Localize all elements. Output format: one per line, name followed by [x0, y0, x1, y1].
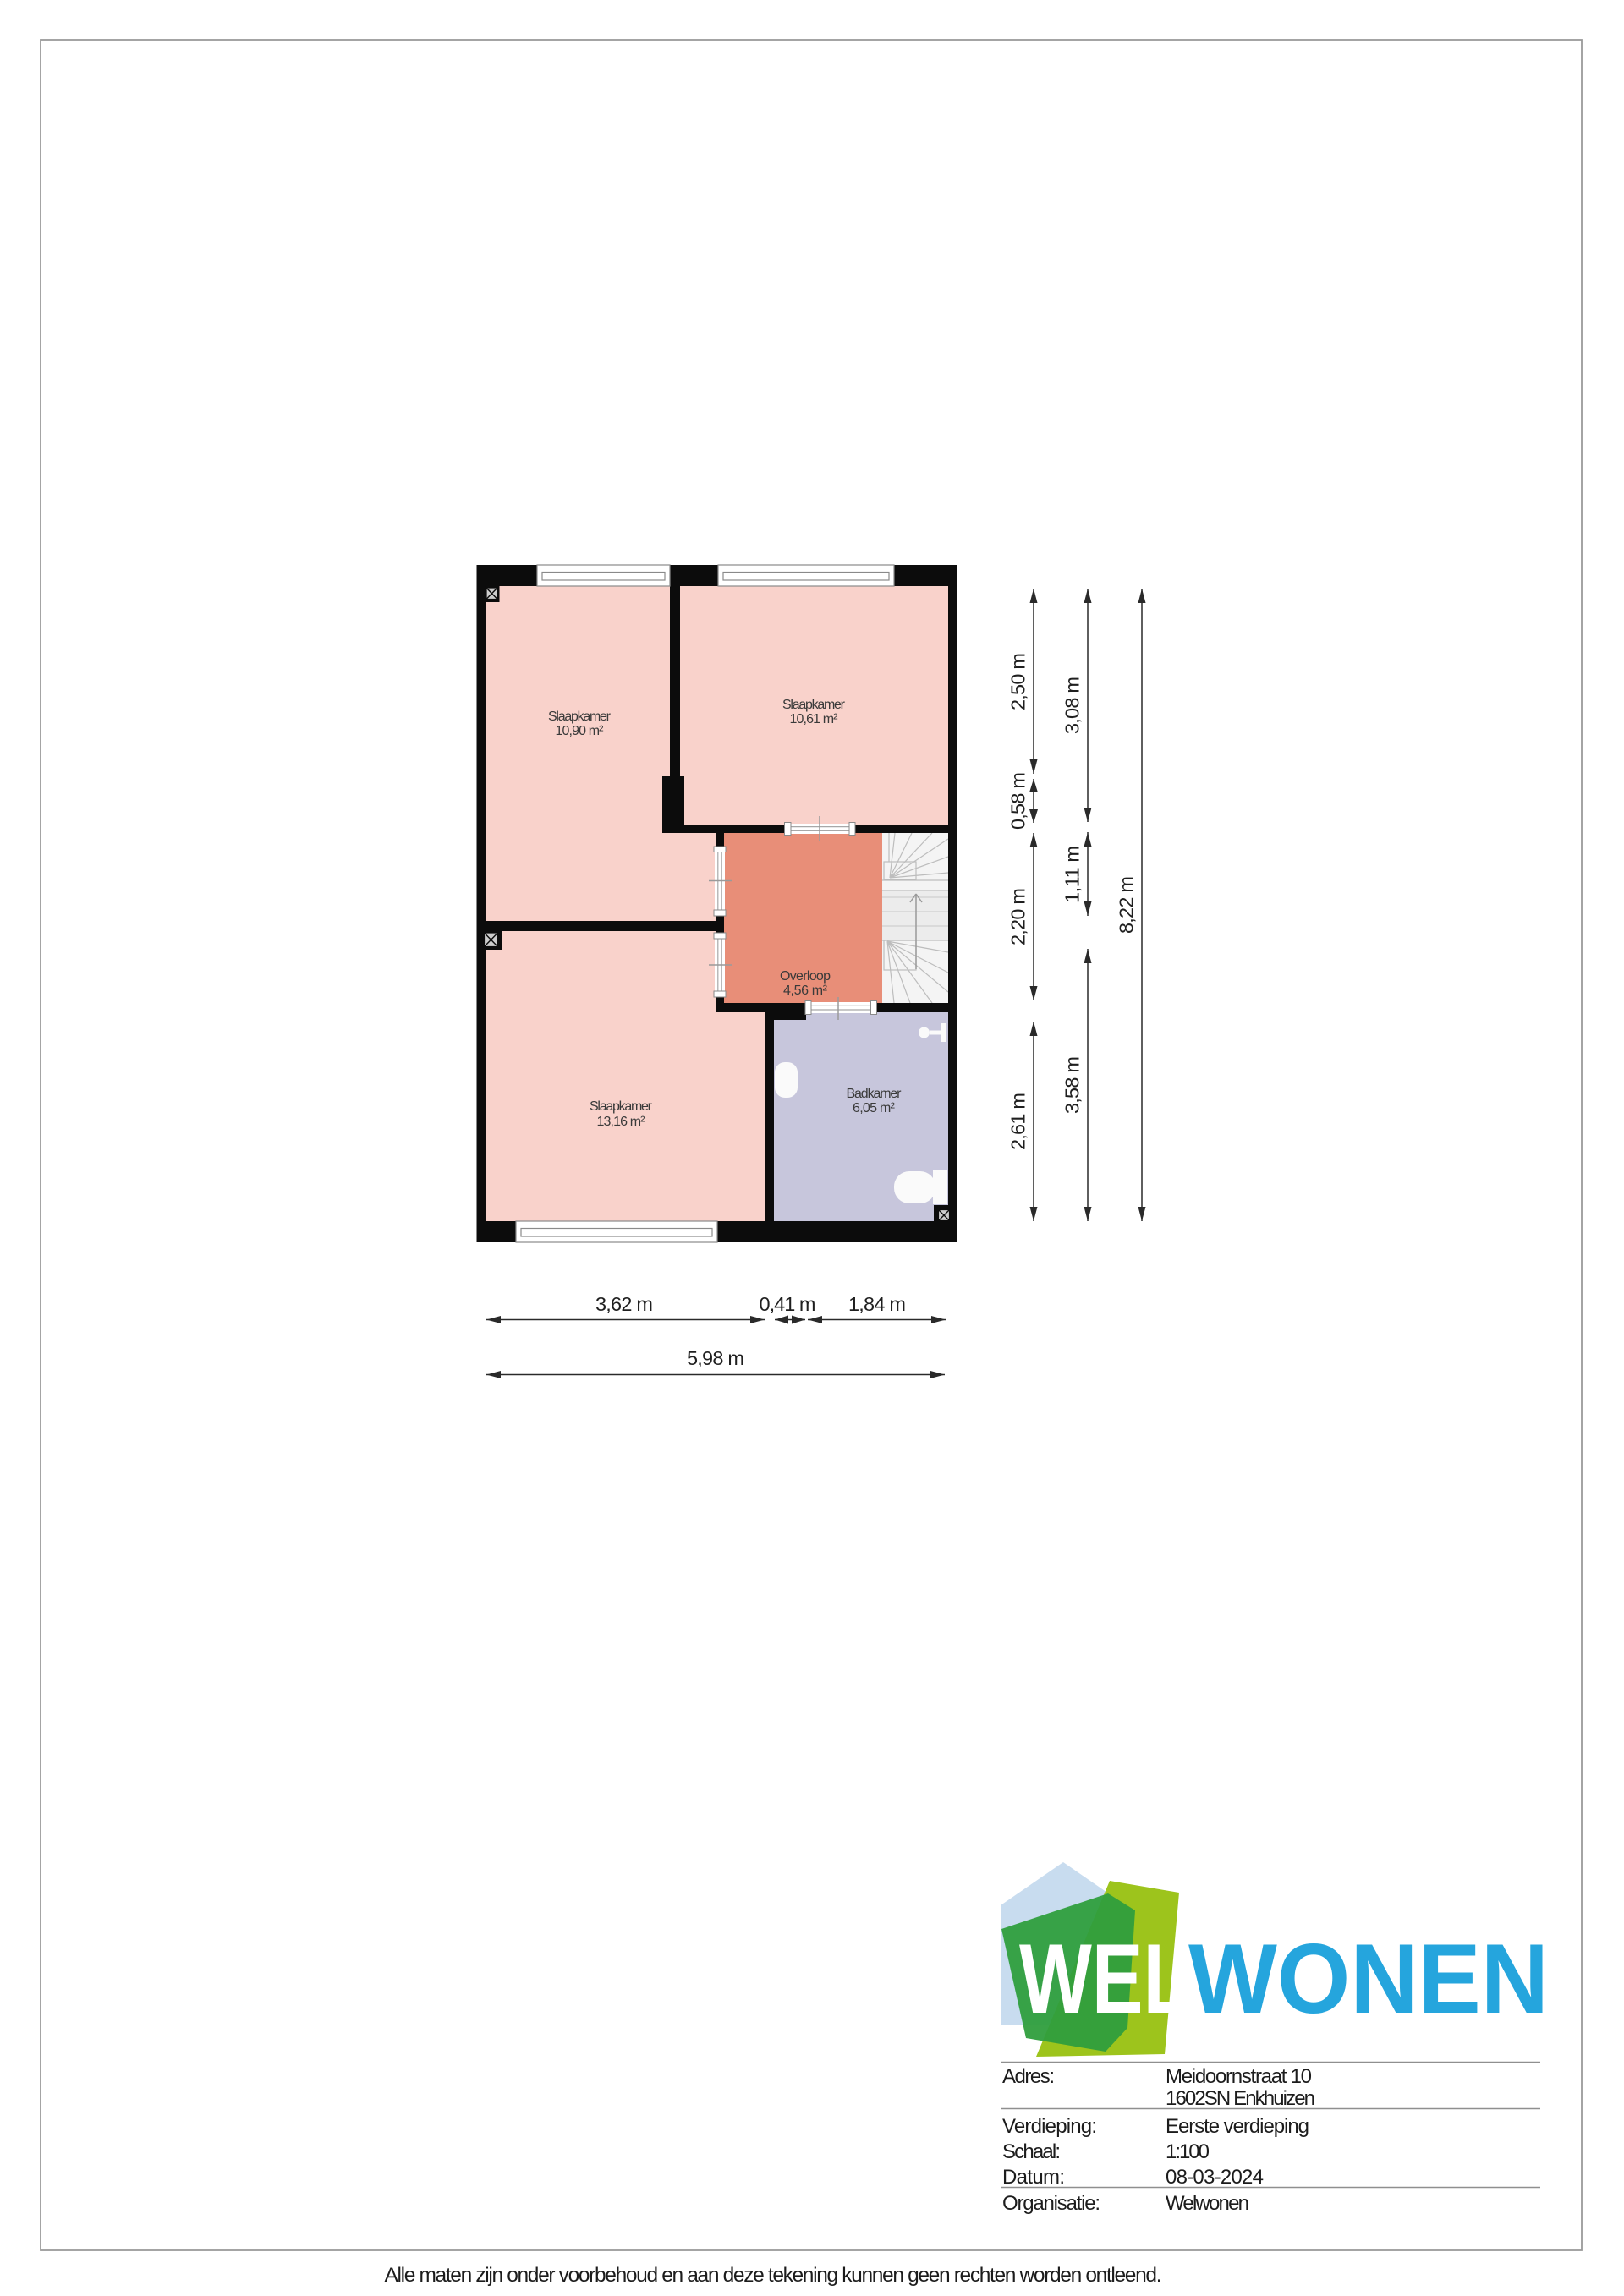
svg-text:Adres:: Adres:: [1002, 2065, 1055, 2088]
svg-text:1602SN Enkhuizen: 1602SN Enkhuizen: [1166, 2087, 1315, 2110]
svg-text:Overloop: Overloop: [780, 969, 831, 984]
svg-text:10,61 m²: 10,61 m²: [790, 712, 839, 726]
svg-text:Datum:: Datum:: [1002, 2166, 1065, 2189]
svg-text:Organisatie:: Organisatie:: [1002, 2192, 1100, 2215]
svg-text:1:100: 1:100: [1166, 2140, 1210, 2163]
svg-text:Welwonen: Welwonen: [1166, 2192, 1249, 2215]
svg-text:2,61 m: 2,61 m: [1007, 1093, 1029, 1150]
svg-text:Meidoornstraat 10: Meidoornstraat 10: [1166, 2065, 1312, 2088]
svg-text:Slaapkamer: Slaapkamer: [548, 710, 612, 724]
svg-text:1,11 m: 1,11 m: [1062, 846, 1084, 903]
svg-text:3,08 m: 3,08 m: [1062, 677, 1084, 734]
svg-text:WEL: WEL: [1019, 1923, 1190, 2034]
svg-text:6,05 m²: 6,05 m²: [853, 1101, 896, 1115]
svg-text:WONEN: WONEN: [1188, 1923, 1549, 2034]
svg-text:2,50 m: 2,50 m: [1007, 653, 1029, 710]
svg-text:Badkamer: Badkamer: [847, 1087, 903, 1101]
svg-text:Verdieping:: Verdieping:: [1002, 2115, 1097, 2138]
svg-text:Alle maten zijn onder voorbeho: Alle maten zijn onder voorbehoud en aan …: [385, 2264, 1162, 2287]
svg-text:3,62 m: 3,62 m: [595, 1293, 653, 1315]
svg-text:08-03-2024: 08-03-2024: [1166, 2166, 1264, 2189]
svg-text:2,20 m: 2,20 m: [1007, 888, 1029, 945]
svg-text:0,41 m: 0,41 m: [760, 1293, 816, 1315]
svg-text:Schaal:: Schaal:: [1002, 2140, 1061, 2163]
svg-text:5,98 m: 5,98 m: [687, 1347, 744, 1369]
svg-text:13,16 m²: 13,16 m²: [597, 1115, 646, 1129]
svg-text:Eerste verdieping: Eerste verdieping: [1166, 2115, 1309, 2138]
svg-text:8,22 m: 8,22 m: [1116, 876, 1138, 934]
svg-text:4,56 m²: 4,56 m²: [783, 984, 828, 998]
svg-text:0,58 m: 0,58 m: [1007, 772, 1029, 830]
svg-text:Slaapkamer: Slaapkamer: [590, 1099, 653, 1114]
svg-text:3,58 m: 3,58 m: [1062, 1056, 1084, 1114]
svg-text:1,84 m: 1,84 m: [848, 1293, 906, 1315]
svg-text:10,90 m²: 10,90 m²: [556, 724, 605, 738]
svg-text:Slaapkamer: Slaapkamer: [782, 698, 846, 712]
